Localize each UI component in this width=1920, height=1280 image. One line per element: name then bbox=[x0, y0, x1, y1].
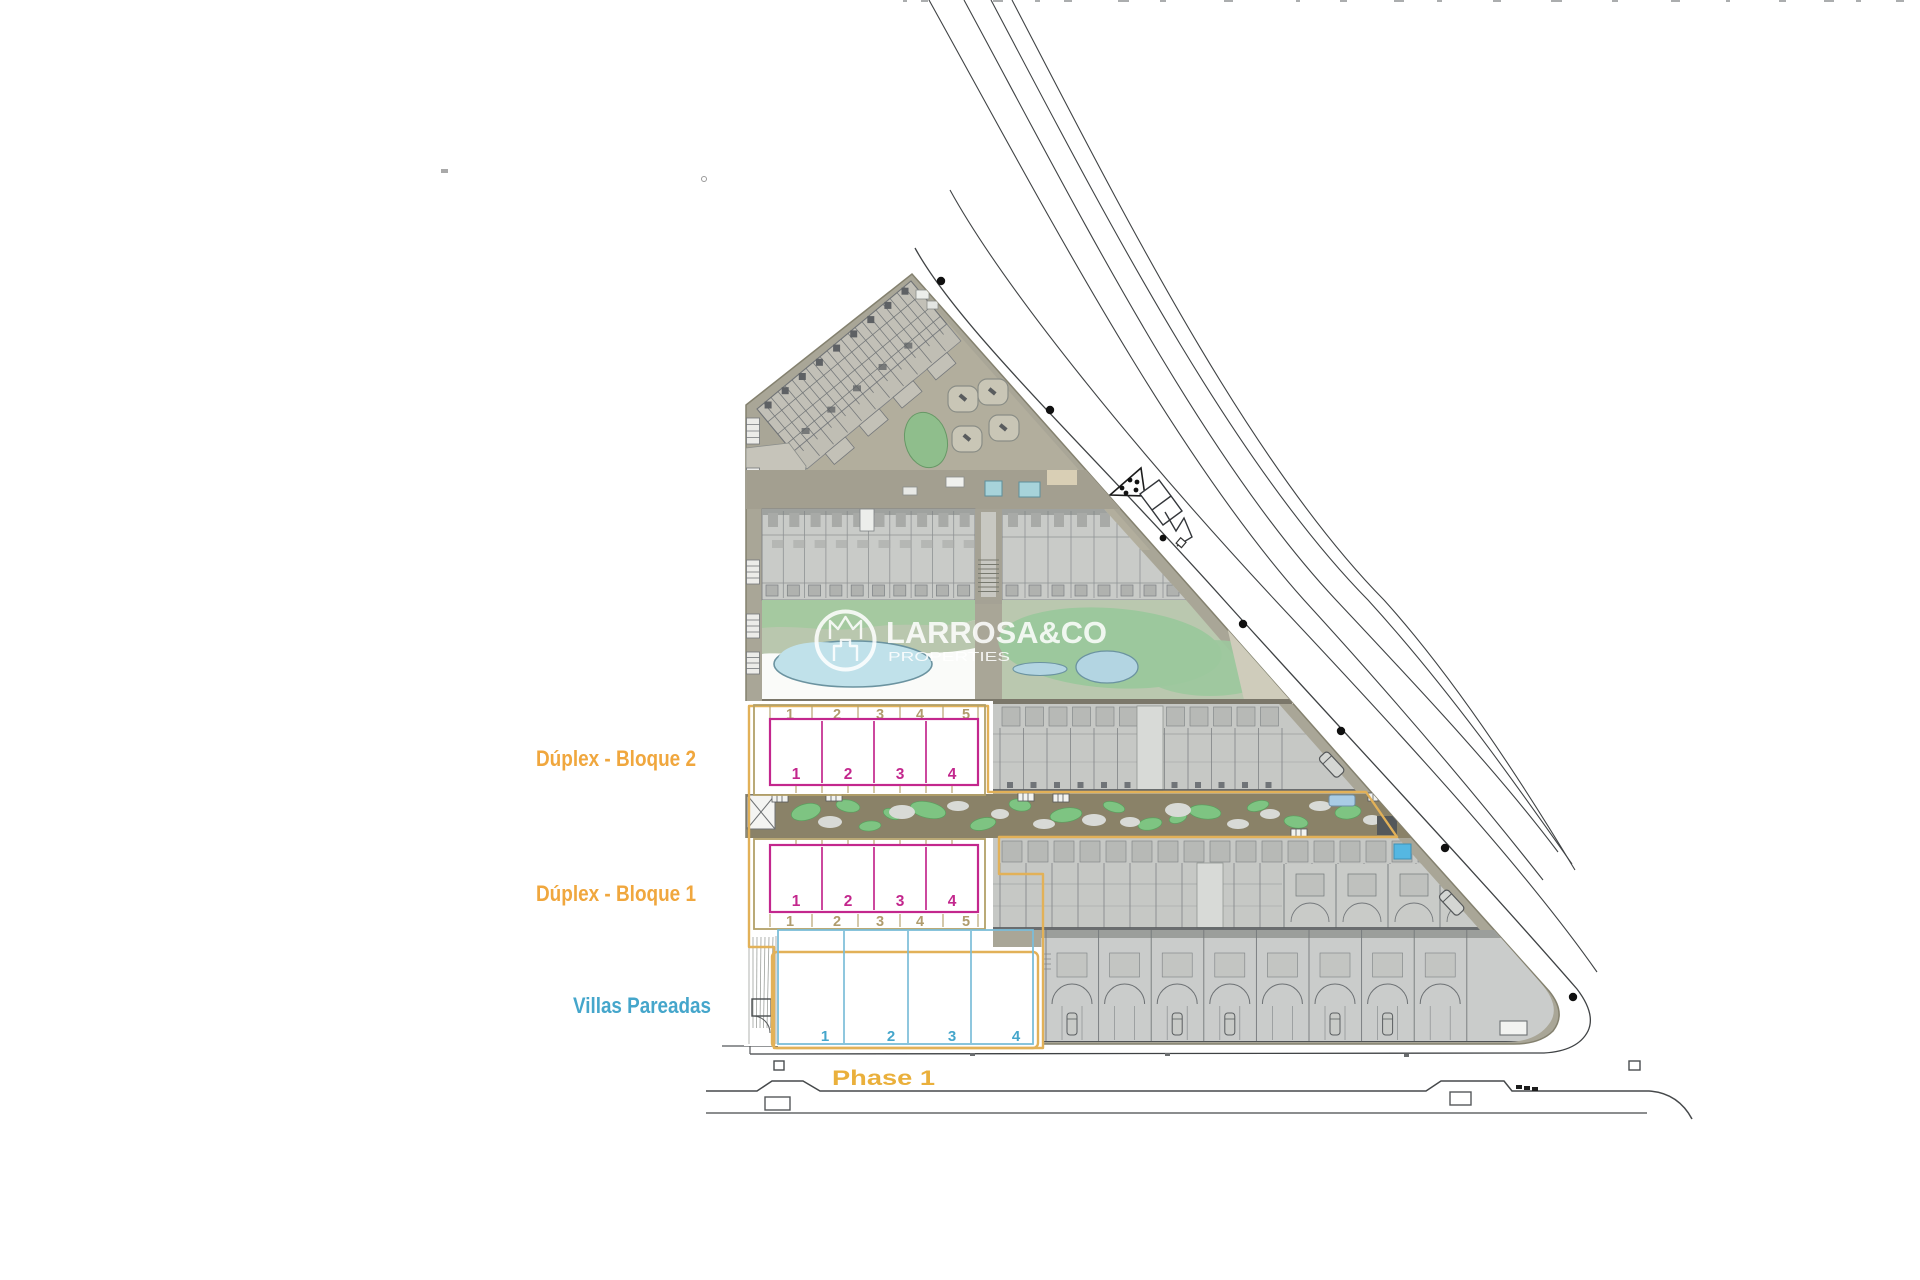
svg-text:PROPERTIES: PROPERTIES bbox=[888, 650, 1010, 664]
svg-text:2: 2 bbox=[844, 893, 853, 910]
svg-text:3: 3 bbox=[876, 707, 884, 723]
svg-text:2: 2 bbox=[833, 914, 841, 930]
svg-text:3: 3 bbox=[896, 766, 905, 783]
svg-text:3: 3 bbox=[876, 914, 884, 930]
svg-text:LARROSA&CO: LARROSA&CO bbox=[886, 615, 1107, 650]
svg-text:1: 1 bbox=[792, 893, 801, 910]
svg-text:2: 2 bbox=[844, 766, 853, 783]
svg-text:4: 4 bbox=[948, 893, 957, 910]
svg-text:Phase 1: Phase 1 bbox=[832, 1066, 935, 1090]
svg-text:Dúplex - Bloque 1: Dúplex - Bloque 1 bbox=[536, 881, 696, 906]
svg-text:4: 4 bbox=[916, 707, 924, 723]
svg-text:1: 1 bbox=[786, 914, 794, 930]
svg-text:Dúplex - Bloque 2: Dúplex - Bloque 2 bbox=[536, 746, 696, 771]
svg-text:1: 1 bbox=[786, 707, 794, 723]
svg-text:1: 1 bbox=[821, 1028, 829, 1045]
svg-text:2: 2 bbox=[887, 1028, 895, 1045]
svg-text:4: 4 bbox=[916, 914, 924, 930]
svg-text:5: 5 bbox=[962, 707, 970, 723]
svg-text:3: 3 bbox=[948, 1028, 956, 1045]
svg-text:2: 2 bbox=[833, 707, 841, 723]
svg-text:3: 3 bbox=[896, 893, 905, 910]
svg-text:Villas Pareadas: Villas Pareadas bbox=[573, 993, 711, 1018]
svg-text:4: 4 bbox=[948, 766, 957, 783]
svg-text:1: 1 bbox=[792, 766, 801, 783]
svg-text:4: 4 bbox=[1012, 1028, 1021, 1045]
svg-text:5: 5 bbox=[962, 914, 970, 930]
